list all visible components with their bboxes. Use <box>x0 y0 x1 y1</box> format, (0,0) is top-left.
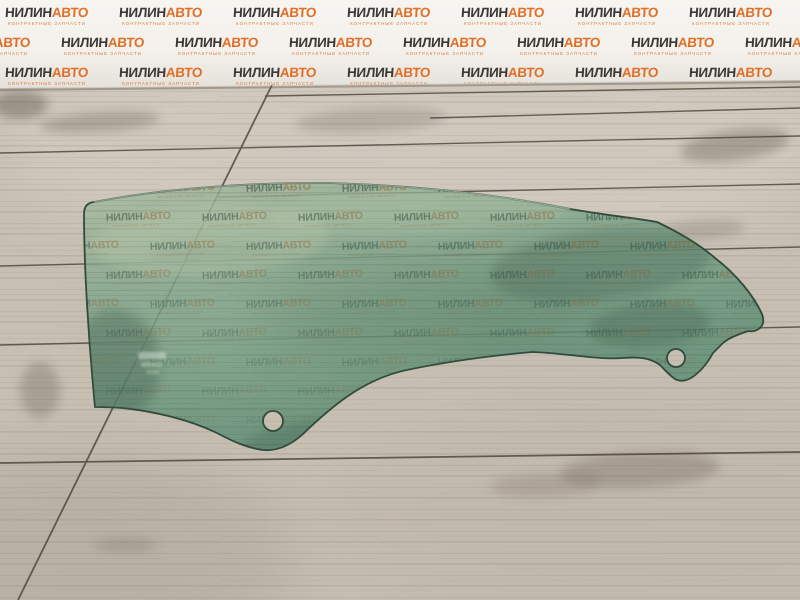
banner-logo-text: НИЛИНАВТО <box>233 66 317 80</box>
banner-logo-primary: НИЛИН <box>403 35 451 50</box>
banner-logo-primary: НИЛИН <box>5 5 53 20</box>
banner-logo-primary: НИЛИН <box>745 35 793 50</box>
banner-logo-accent: АВТО <box>394 65 431 80</box>
banner-logo-accent: АВТО <box>166 5 203 20</box>
watermark-text: НИЛИНАВТО <box>202 210 267 224</box>
banner-logo-primary: НИЛИН <box>575 65 623 80</box>
banner-logo-text: НИЛИНАВТО <box>5 6 89 20</box>
banner-logo-text: НИЛИНАВТО <box>233 6 317 20</box>
banner-logo-text: НИЛИНАВТО <box>403 36 487 50</box>
banner-logo: НИЛИНАВТОконтрактные запчасти <box>388 36 502 56</box>
banner-logo-primary: НИЛИН <box>689 65 737 80</box>
watermark-text: НИЛИНАВТО <box>202 326 267 340</box>
watermark-text: НИЛИНАВТО <box>106 326 171 340</box>
watermark-text: НИЛИНАВТО <box>534 239 599 253</box>
watermark-text: НИЛИНАВТО <box>630 297 695 311</box>
banner-logo-text: НИЛИНАВТО <box>175 36 259 50</box>
banner-logo: НИЛИНАВТОконтрактные запчасти <box>160 36 274 56</box>
banner-tagline: контрактные запчасти <box>692 21 770 26</box>
watermark-text: НИЛИНАВТО <box>246 297 311 311</box>
watermark-text: НИЛИНАВТО <box>586 326 651 340</box>
banner-tagline: контрактные запчасти <box>464 21 542 26</box>
watermark-text: НИЛИНАВТО <box>106 268 171 282</box>
watermark-text: НИЛИНАВТО <box>586 268 651 282</box>
watermark-text: НИЛИНАВТО <box>106 210 171 224</box>
banner-logo-accent: АВТО <box>508 5 545 20</box>
floor-and-glass-photo: НИЛИНАВТОконтрактные запчастиНИЛИНАВТОко… <box>0 0 800 600</box>
banner-tagline: контрактные запчасти <box>122 21 200 26</box>
watermark-text: НИЛИНАВТО <box>298 326 363 340</box>
banner-logo: НИЛИНАВТОконтрактные запчасти <box>104 66 218 86</box>
watermark-text: НИЛИНАВТО <box>246 239 311 253</box>
banner-logo: НИЛИНАВТОконтрактные запчасти <box>0 36 46 56</box>
watermark-text: НИЛИНАВТО <box>298 210 363 224</box>
watermark-text: НИЛИНАВТО <box>342 297 407 311</box>
banner-logo-primary: НИЛИН <box>347 65 395 80</box>
banner-tagline: контрактные запчасти <box>8 21 86 26</box>
banner-logo-text: НИЛИНАВТО <box>61 36 145 50</box>
watermark-text: НИЛИНАВТО <box>150 239 215 253</box>
watermark-text: НИЛИНАВТО <box>342 355 407 369</box>
watermark-text: НИЛИНАВТО <box>438 297 503 311</box>
banner-logo-accent: АВТО <box>0 35 31 50</box>
banner-logo-accent: АВТО <box>678 35 715 50</box>
banner-logo-primary: НИЛИН <box>5 65 53 80</box>
banner-tagline: контрактные запчасти <box>520 51 598 56</box>
banner-logo: НИЛИНАВТОконтрактные запчасти <box>674 6 788 26</box>
watermark-text: НИЛИНАВТО <box>534 297 599 311</box>
watermark-text: НИЛИНАВТО <box>246 355 311 369</box>
banner-logo-accent: АВТО <box>564 35 601 50</box>
watermark-text: НИЛИНАВТО <box>394 210 459 224</box>
watermark-text: НИЛИНАВТО <box>394 268 459 282</box>
banner-tagline: контрактные запчасти <box>0 51 28 56</box>
banner-logo-accent: АВТО <box>336 35 373 50</box>
banner-tagline: контрактные запчасти <box>64 51 142 56</box>
banner-logo-accent: АВТО <box>792 35 800 50</box>
watermark-text: НИЛИНАВТО <box>150 297 215 311</box>
banner-logo-accent: АВТО <box>622 65 659 80</box>
banner-logo-primary: НИЛИН <box>689 5 737 20</box>
banner-tagline: контрактные запчасти <box>236 21 314 26</box>
banner-logo-primary: НИЛИН <box>347 5 395 20</box>
watermark-text: НИЛИНАВТО <box>490 210 555 224</box>
banner-logo-accent: АВТО <box>280 65 317 80</box>
banner-logo-accent: АВТО <box>736 65 773 80</box>
banner-logo-text: НИЛИНАВТО <box>575 66 659 80</box>
banner-logo: НИЛИНАВТОконтрактные запчасти <box>332 66 446 86</box>
banner-logo: НИЛИНАВТОконтрактные запчасти <box>274 36 388 56</box>
banner-logo-accent: АВТО <box>508 65 545 80</box>
banner-tagline: контрактные запчасти <box>178 51 256 56</box>
banner-logo-accent: АВТО <box>52 65 89 80</box>
wood-knot <box>20 362 60 418</box>
banner-logo-accent: АВТО <box>222 35 259 50</box>
banner-logo: НИЛИНАВТОконтрактные запчасти <box>218 66 332 86</box>
banner-tagline: контрактные запчасти <box>748 51 800 56</box>
banner-logo: НИЛИНАВТОконтрактные запчасти <box>218 6 332 26</box>
watermark-text: НИЛИНАВТО <box>298 268 363 282</box>
banner-logo-text: НИЛИНАВТО <box>347 6 431 20</box>
banner-logo: НИЛИНАВТОконтрактные запчасти <box>46 36 160 56</box>
banner-logo-text: НИЛИНАВТО <box>119 6 203 20</box>
banner-logo-primary: НИЛИН <box>119 5 167 20</box>
banner-tagline: контрактные запчасти <box>578 21 656 26</box>
banner-logo-text: НИЛИНАВТО <box>631 36 715 50</box>
banner-logo-text: НИЛИНАВТО <box>745 36 800 50</box>
banner-logo: НИЛИНАВТОконтрактные запчасти <box>616 36 730 56</box>
banner-tagline: контрактные запчасти <box>122 81 200 86</box>
banner-logo-accent: АВТО <box>166 65 203 80</box>
banner-logo-primary: НИЛИН <box>233 5 281 20</box>
wood-knot <box>93 538 157 552</box>
banner-logo: НИЛИНАВТОконтрактные запчасти <box>560 6 674 26</box>
watermark-text: НИЛИНАВТО <box>202 268 267 282</box>
banner-logo-text: НИЛИНАВТО <box>461 6 545 20</box>
watermark-text: НИЛИНАВТО <box>202 384 267 398</box>
watermark-text: НИЛИНАВТО <box>490 326 555 340</box>
banner-logo-text: НИЛИНАВТО <box>689 6 773 20</box>
banner-logo-text: НИЛИНАВТО <box>517 36 601 50</box>
banner-tagline: контрактные запчасти <box>406 51 484 56</box>
banner-tagline: контрактные запчасти <box>292 51 370 56</box>
banner-logo-accent: АВТО <box>280 5 317 20</box>
banner-logo-text: НИЛИНАВТО <box>575 6 659 20</box>
banner-logo-text: НИЛИНАВТО <box>119 66 203 80</box>
banner-tagline: контрактные запчасти <box>350 21 428 26</box>
banner-logo-primary: НИЛИН <box>461 65 509 80</box>
scene: НИЛИНАВТОконтрактные запчастиНИЛИНАВТОко… <box>0 0 800 600</box>
banner-logo-accent: АВТО <box>394 5 431 20</box>
watermark-text: НИЛИНАВТО <box>438 239 503 253</box>
watermark-text: НИЛИНАВТО <box>630 239 695 253</box>
banner: НИЛИНАВТОконтрактные запчастиНИЛИНАВТОко… <box>0 0 800 94</box>
banner-logo-accent: АВТО <box>622 5 659 20</box>
banner-logo-text: НИЛИНАВТО <box>5 66 89 80</box>
watermark-text: НИЛИНАВТО <box>394 326 459 340</box>
banner-logo: НИЛИНАВТОконтрактные запчасти <box>104 6 218 26</box>
banner-tagline: контрактные запчасти <box>634 51 712 56</box>
banner-logo-accent: АВТО <box>108 35 145 50</box>
banner-logo: НИЛИНАВТОконтрактные запчасти <box>0 6 104 26</box>
watermark-text: НИЛИНАВТО <box>490 268 555 282</box>
banner-logo-primary: НИЛИН <box>175 35 223 50</box>
banner-logo-primary: НИЛИН <box>61 35 109 50</box>
banner-logo-text: НИЛИНАВТО <box>289 36 373 50</box>
banner-logo-text: НИЛИНАВТО <box>689 66 773 80</box>
banner-logo-text: НИЛИНАВТО <box>461 66 545 80</box>
banner-logo-primary: НИЛИН <box>233 65 281 80</box>
banner-logo-accent: АВТО <box>736 5 773 20</box>
banner-logo: НИЛИНАВТОконтрактные запчасти <box>332 6 446 26</box>
banner-logo-primary: НИЛИН <box>517 35 565 50</box>
banner-logo-primary: НИЛИН <box>119 65 167 80</box>
banner-logo-accent: АВТО <box>52 5 89 20</box>
watermark-text: НИЛИНАВТО <box>342 239 407 253</box>
banner-tagline: контрактные запчасти <box>8 81 86 86</box>
banner-logo: НИЛИНАВТОконтрактные запчасти <box>0 66 104 86</box>
banner-logo: НИЛИНАВТОконтрактные запчасти <box>502 36 616 56</box>
banner-logo: НИЛИНАВТОконтрактные запчасти <box>788 6 800 26</box>
banner-logo-text: НИЛИНАВТО <box>0 36 31 50</box>
banner-logo-primary: НИЛИН <box>631 35 679 50</box>
banner-logo: НИЛИНАВТОконтрактные запчасти <box>446 6 560 26</box>
banner-logo-primary: НИЛИН <box>575 5 623 20</box>
banner-logo-primary: НИЛИН <box>289 35 337 50</box>
banner-logo-text: НИЛИНАВТО <box>347 66 431 80</box>
watermark-text: НИЛИНАВТО <box>106 384 171 398</box>
banner-logo-accent: АВТО <box>450 35 487 50</box>
banner-logo: НИЛИНАВТОконтрактные запчасти <box>730 36 800 56</box>
banner-logo-primary: НИЛИН <box>461 5 509 20</box>
